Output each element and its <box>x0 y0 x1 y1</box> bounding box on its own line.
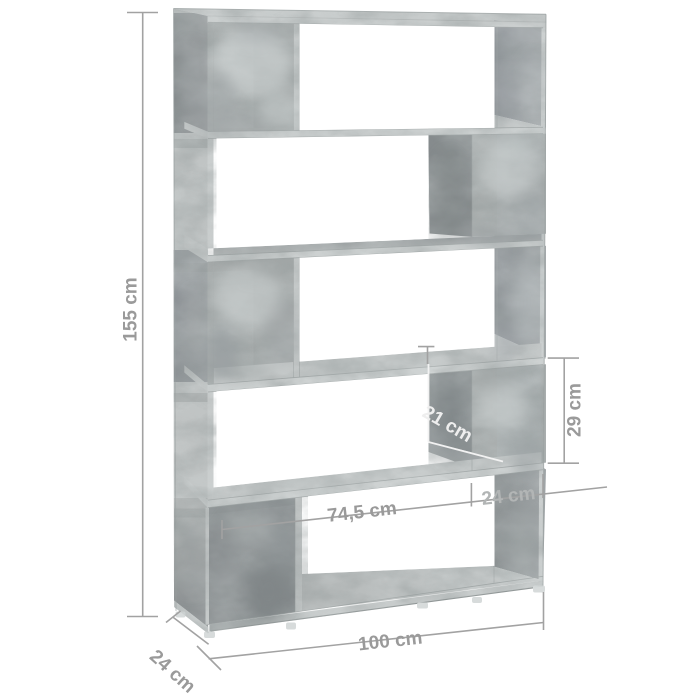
svg-text:155 cm: 155 cm <box>120 277 141 341</box>
svg-text:29 cm: 29 cm <box>565 383 586 437</box>
